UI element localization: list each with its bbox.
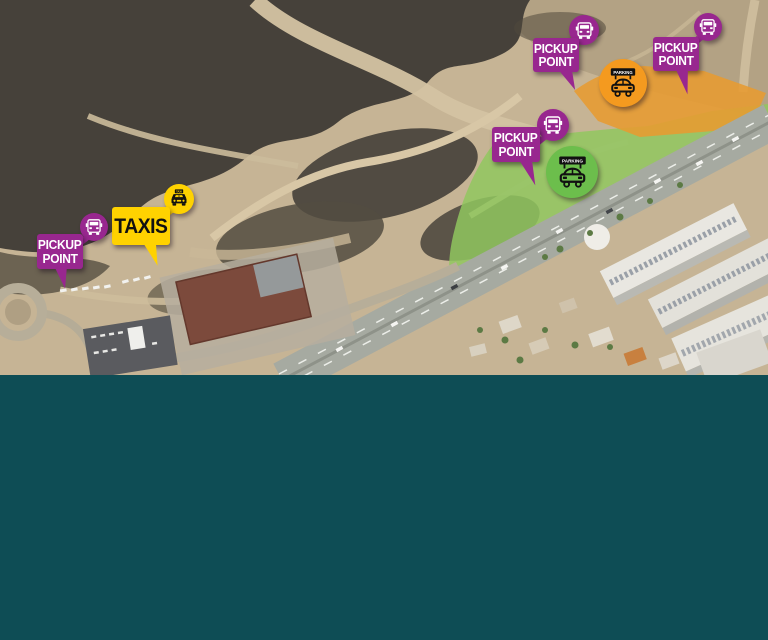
pickup-label: POINT <box>538 55 573 69</box>
taxis-label: TAXIS <box>114 216 167 237</box>
bus-icon <box>699 18 717 36</box>
pickup-label: PICKUP <box>38 238 82 252</box>
parking-icon <box>606 66 640 100</box>
bus-icon <box>543 115 563 135</box>
pickup-label: POINT <box>42 252 77 266</box>
pickup-point-bubble: PICKUP POINT <box>37 234 83 269</box>
bus-icon <box>575 21 594 40</box>
bus-icon <box>85 218 103 236</box>
pickup-label: POINT <box>658 54 693 68</box>
pickup-label: PICKUP <box>494 131 538 145</box>
parking-infographic: PICKUP POINT PICKUP POINT PICKUP POINT <box>0 0 768 640</box>
pickup-label: POINT <box>498 145 533 159</box>
taxis-bubble: TAXIS <box>112 207 170 245</box>
info-panel: E Mifel TENNIS OPEN BY telcel oppo <box>0 375 768 640</box>
aerial-map: PICKUP POINT PICKUP POINT PICKUP POINT <box>0 0 768 375</box>
parking-icon <box>554 154 591 191</box>
shuttle-pin <box>80 213 108 241</box>
orange-parking-marker <box>599 59 647 107</box>
pickup-point-bubble: PICKUP POINT <box>653 37 699 71</box>
shuttle-pin <box>537 109 569 141</box>
shuttle-pin <box>694 13 722 41</box>
green-parking-marker <box>546 146 598 198</box>
pickup-point-bubble: PICKUP POINT <box>492 127 540 162</box>
pickup-point-bubble: PICKUP POINT <box>533 38 579 72</box>
taxi-icon <box>169 189 189 209</box>
pickup-label: PICKUP <box>534 42 578 56</box>
pickup-label: PICKUP <box>654 41 698 55</box>
